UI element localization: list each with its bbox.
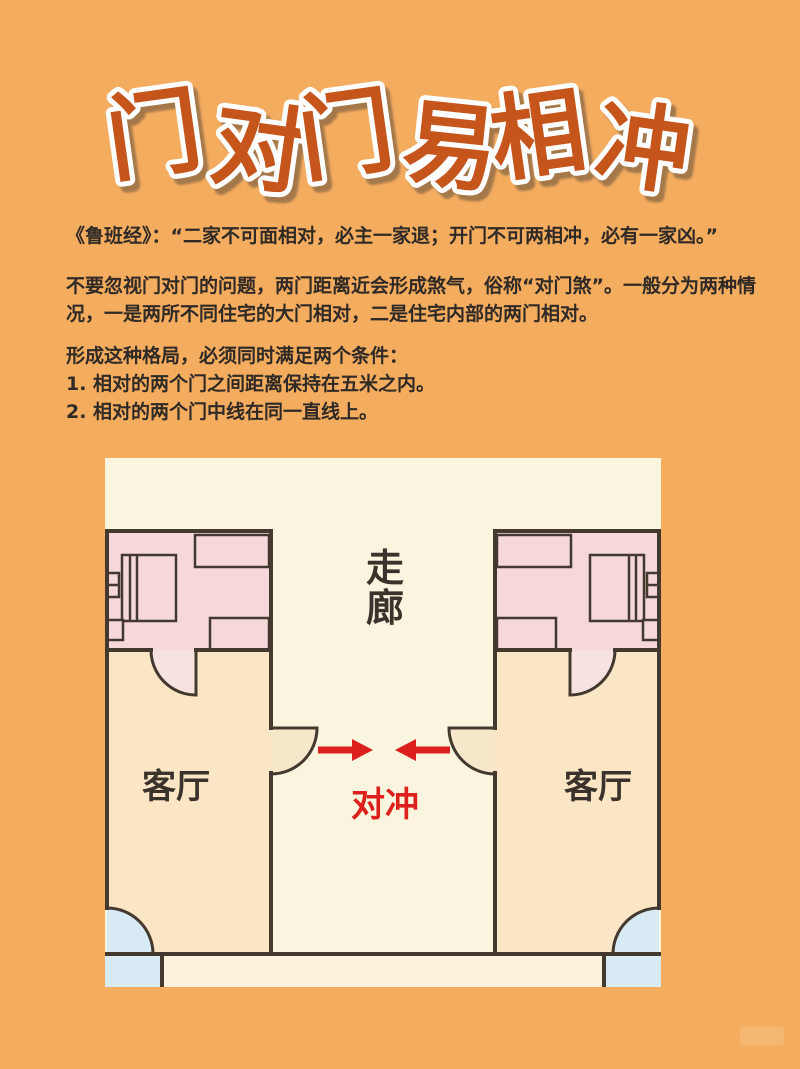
infographic-page: 门对门易相冲 《鲁班经》：“二家不可面相对，必主一家退；开门不可两相冲，必有一家…	[0, 0, 800, 1069]
condition-item-2: 2. 相对的两个门中线在同一直线上。	[66, 398, 766, 426]
clash-label: 对冲	[351, 785, 419, 825]
page-title: 门对门易相冲	[0, 62, 800, 212]
right-window-strip	[604, 954, 661, 987]
left-room-label: 客厅	[142, 767, 210, 807]
intro-copy: 《鲁班经》：“二家不可面相对，必主一家退；开门不可两相冲，必有一家凶。” 不要忽…	[66, 222, 766, 426]
floorplan-diagram: 走 廊 客厅 客厅 对冲	[105, 458, 661, 987]
corridor-label-char-1: 走	[366, 546, 404, 590]
right-wardrobe	[497, 535, 571, 567]
right-room-label: 客厅	[564, 767, 632, 807]
left-window-strip	[105, 954, 162, 987]
quote-paragraph: 《鲁班经》：“二家不可面相对，必主一家退；开门不可两相冲，必有一家凶。”	[66, 222, 766, 250]
title-text: 门对门易相冲	[100, 75, 699, 210]
balcony-strip	[105, 954, 661, 987]
corridor-label-char-2: 廊	[366, 586, 404, 630]
conditions-block: 形成这种格局，必须同时满足两个条件： 1. 相对的两个门之间距离保持在五米之内。…	[66, 342, 766, 426]
left-wardrobe	[195, 535, 269, 567]
explain-paragraph: 不要忽视门对门的问题，两门距离近会形成煞气，俗称“对门煞”。一般分为两种情况，一…	[66, 272, 766, 328]
right-dresser	[497, 618, 556, 650]
left-dresser	[210, 618, 269, 650]
conditions-title: 形成这种格局，必须同时满足两个条件：	[66, 342, 766, 370]
condition-item-1: 1. 相对的两个门之间距离保持在五米之内。	[66, 370, 766, 398]
watermark	[740, 1026, 784, 1046]
